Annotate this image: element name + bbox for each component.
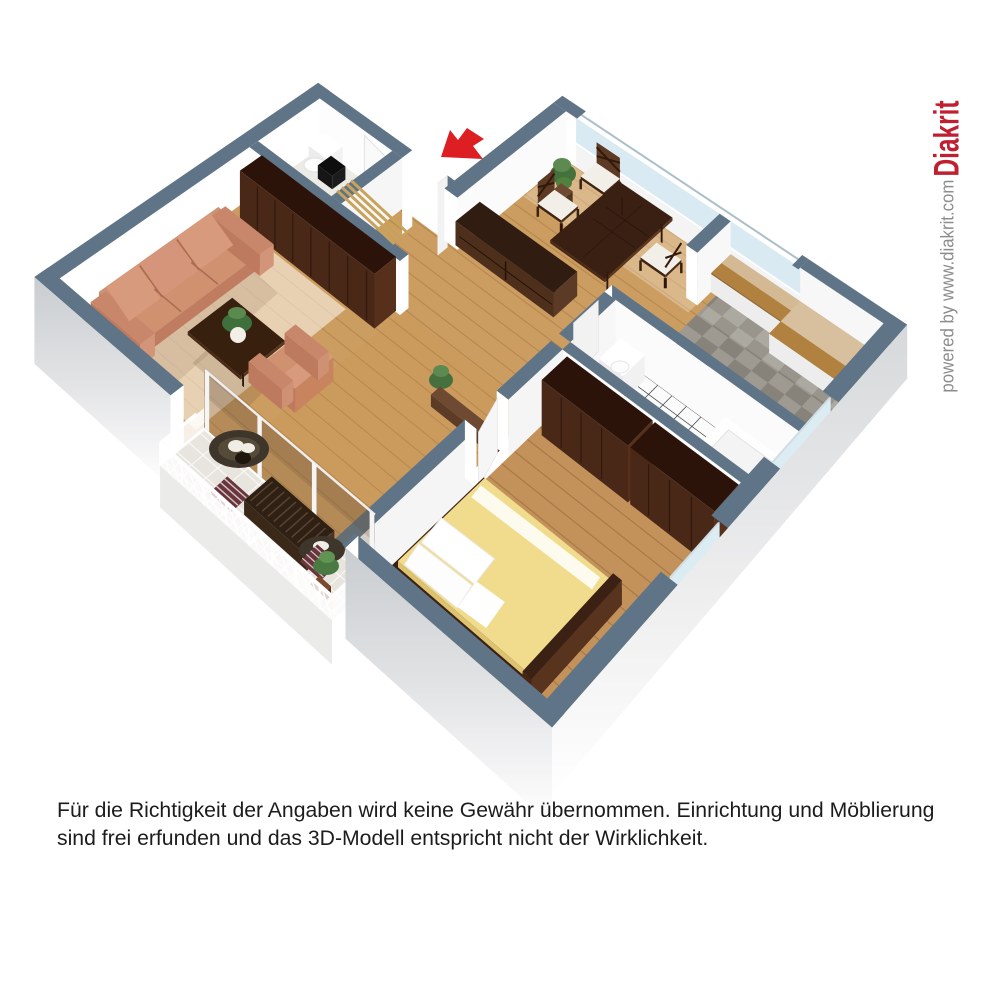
svg-text:Diakrit: Diakrit <box>928 100 967 176</box>
svg-text:sind frei erfunden und das 3D-: sind frei erfunden und das 3D-Modell ent… <box>57 827 708 850</box>
svg-text:powered by www.diakrit.com: powered by www.diakrit.com <box>938 180 958 393</box>
svg-text:Für die Richtigkeit der Angabe: Für die Richtigkeit der Angaben wird kei… <box>57 799 934 822</box>
